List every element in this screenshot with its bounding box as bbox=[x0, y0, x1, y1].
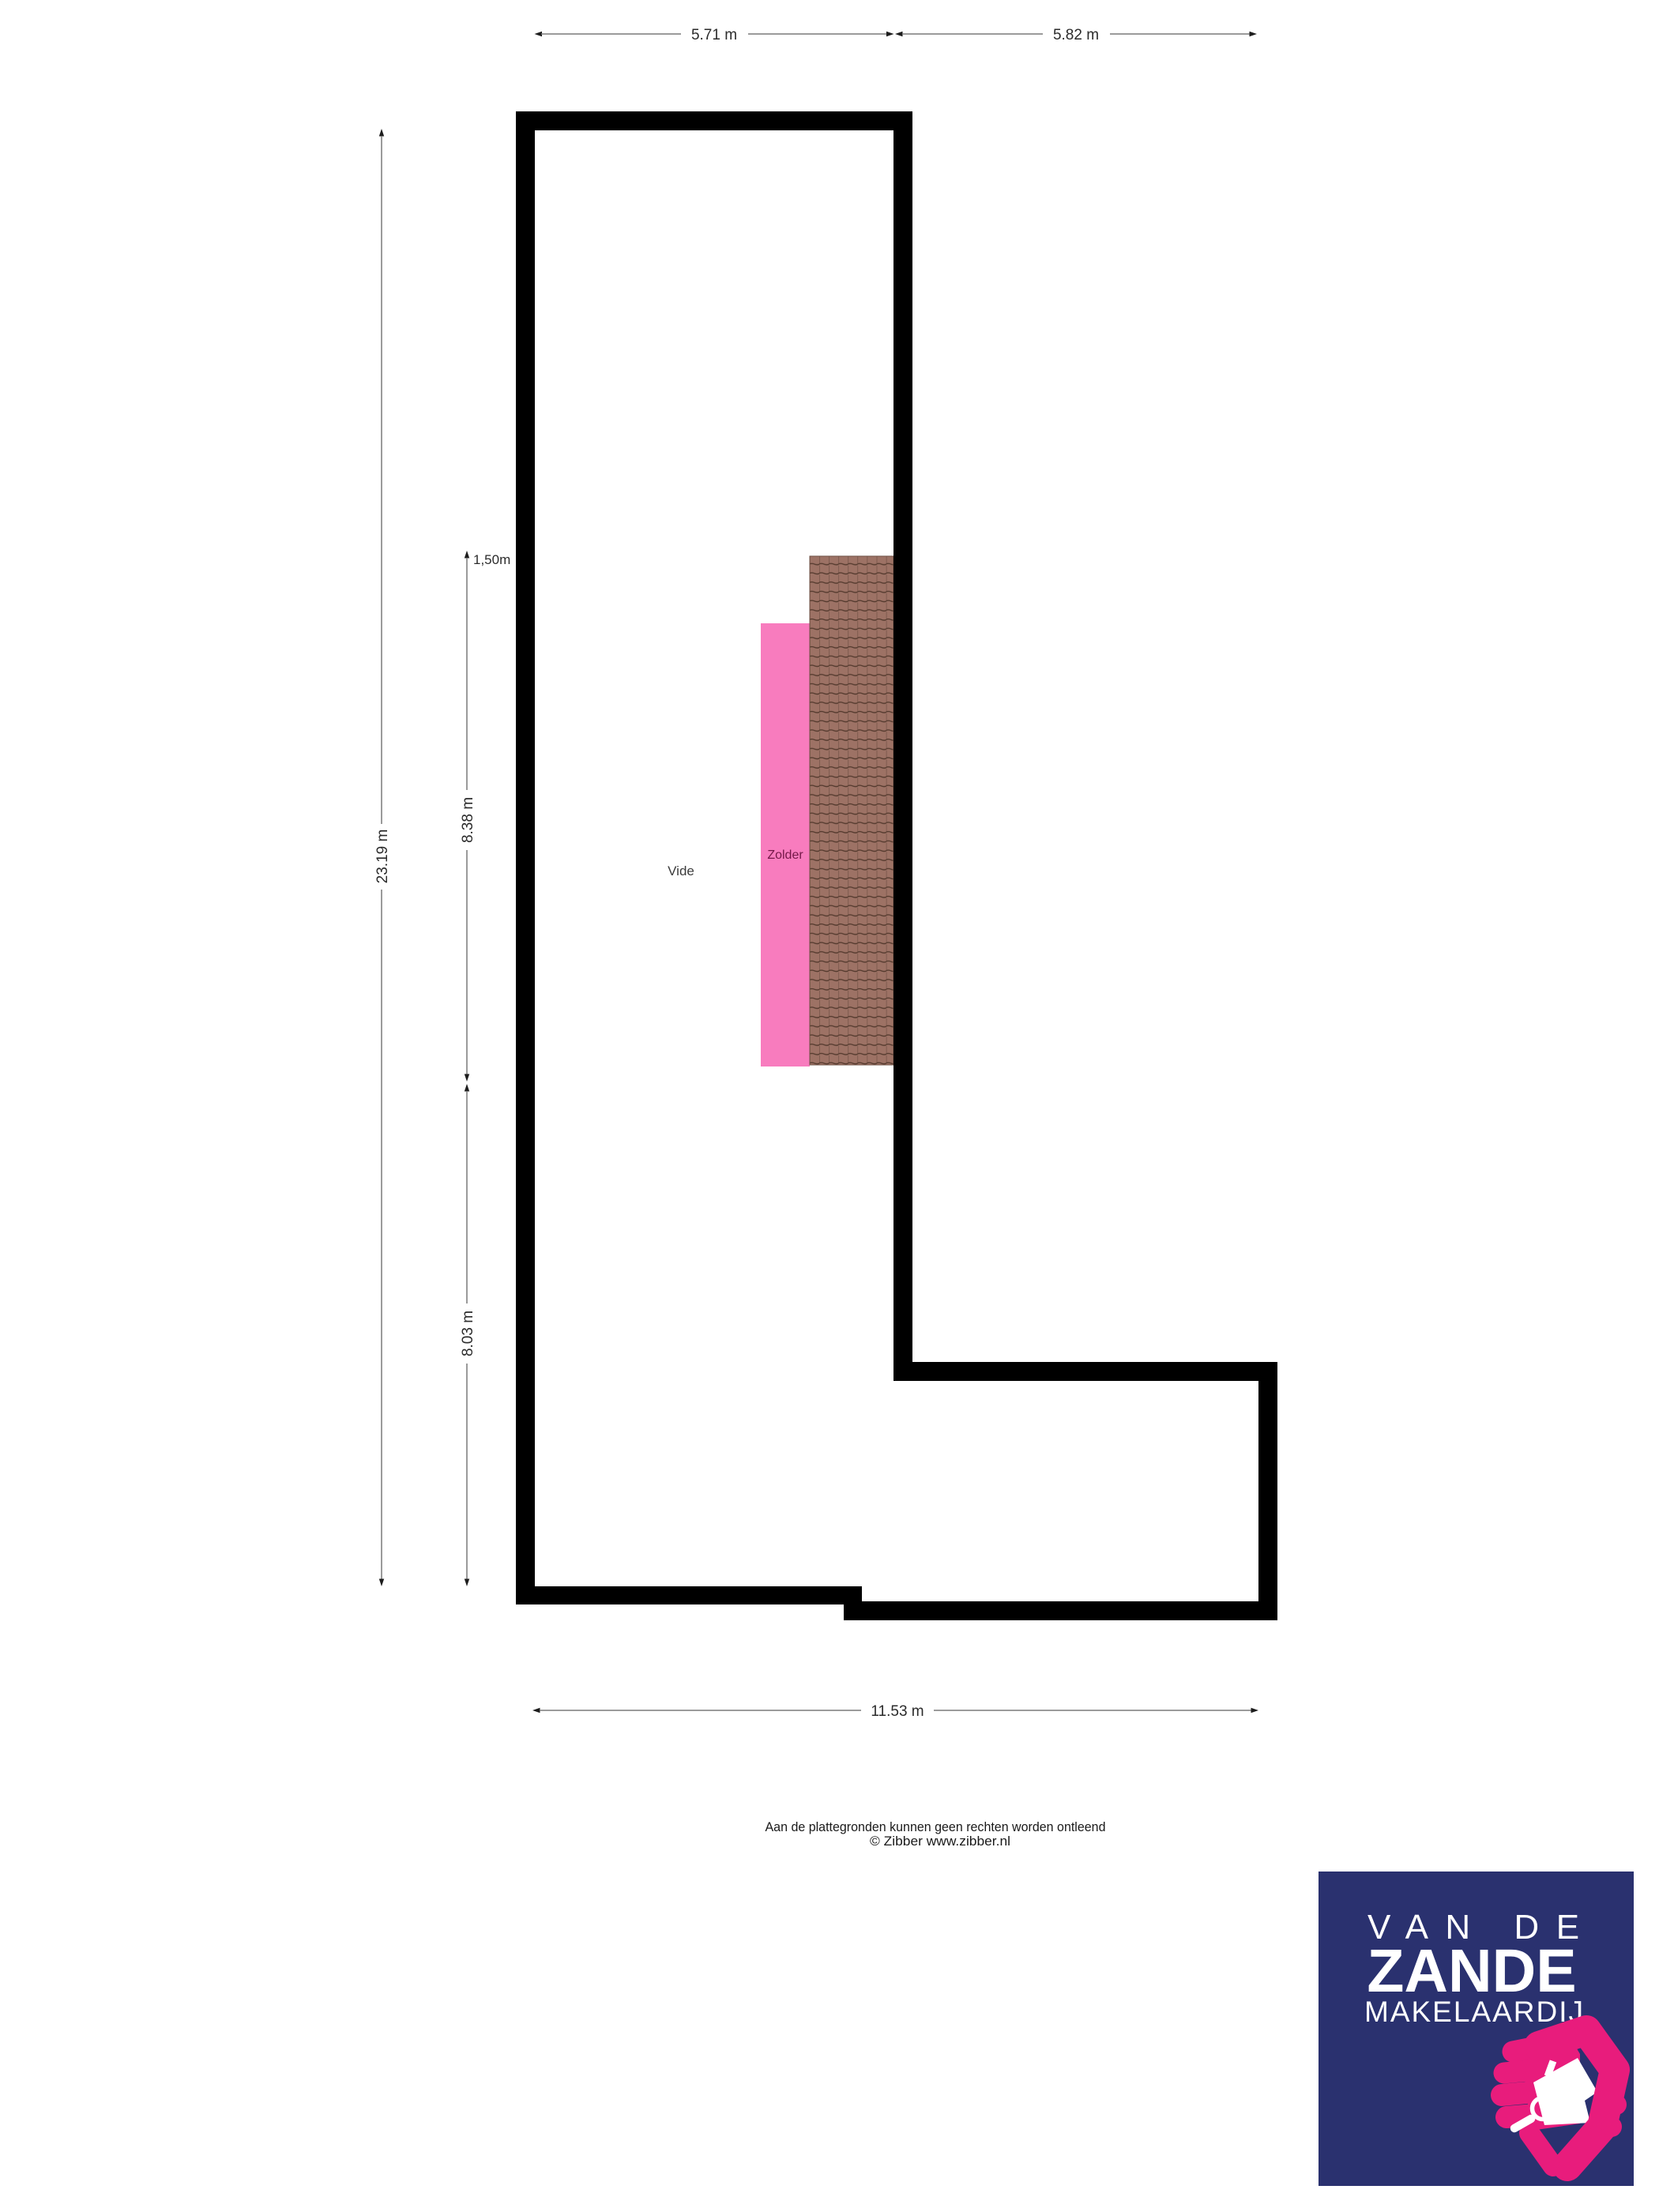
svg-text:Vide: Vide bbox=[668, 863, 694, 878]
svg-text:8.38 m: 8.38 m bbox=[460, 797, 476, 843]
svg-text:11.53 m: 11.53 m bbox=[871, 1703, 924, 1720]
svg-text:MAKELAARDIJ: MAKELAARDIJ bbox=[1364, 1996, 1585, 2028]
svg-text:Aan de plattegronden kunnen ge: Aan de plattegronden kunnen geen rechten… bbox=[766, 1819, 1106, 1834]
svg-text:Zolder: Zolder bbox=[767, 848, 803, 862]
svg-text:5.71 m: 5.71 m bbox=[691, 27, 737, 43]
svg-text:© Zibber www.zibber.nl: © Zibber www.zibber.nl bbox=[870, 1834, 1010, 1849]
svg-text:8.03 m: 8.03 m bbox=[460, 1311, 476, 1356]
svg-text:5.82 m: 5.82 m bbox=[1053, 27, 1099, 43]
svg-text:1,50m: 1,50m bbox=[473, 552, 510, 567]
svg-text:23.19 m: 23.19 m bbox=[374, 829, 391, 884]
